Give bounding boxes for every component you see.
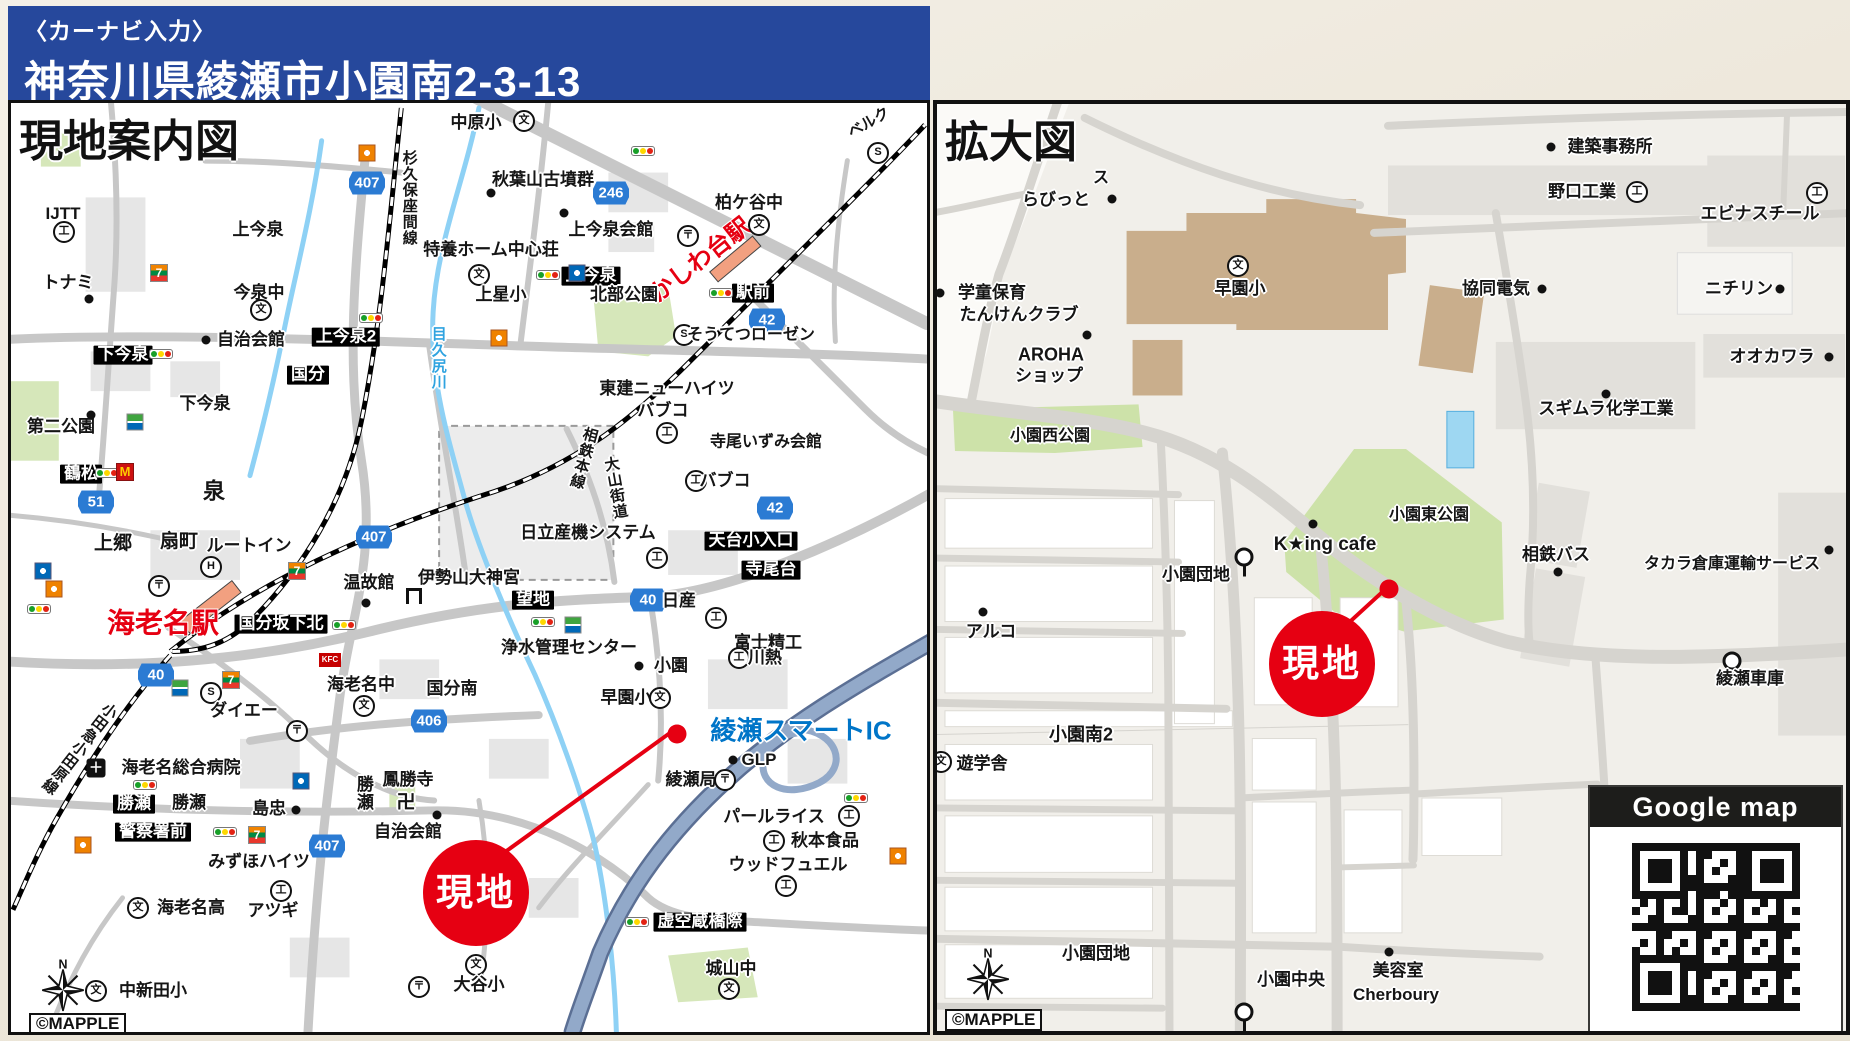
map-label: 伊勢山大神宮 [418,569,520,587]
map-label: 美容室 [1373,962,1424,980]
map-label: K★ing cafe [1274,535,1377,555]
poi-dot-icon [1554,568,1563,577]
map-label: 第二公園 [27,418,95,436]
route-shield: 40 [138,664,174,687]
map-label: オオカワラ [1730,348,1815,366]
poi-mark-icon: 文 [718,978,740,1000]
bus-stop-icon [1723,652,1742,671]
poi-dot-icon [87,411,96,420]
poi-dot-icon [1309,520,1318,529]
poi-mark-icon: 文 [468,264,490,286]
traffic-signal-icon [631,146,655,156]
map-label: 早園小 [1215,280,1266,298]
poi-mark-icon: 〒 [677,225,699,247]
google-map-box: Google map [1588,785,1843,1035]
map-label: 国分南 [427,680,478,698]
map-label: 綾瀬車庫 [1716,670,1784,688]
poi-mark-icon: S [867,142,889,164]
map-label: 泉 [203,481,225,504]
poi-mark-icon: 文 [85,980,107,1002]
station-label: 海老名駅 [107,608,219,637]
poi-mark-icon: 工 [705,607,727,629]
mapple-credit: ©MAPPLE [29,1013,126,1035]
lawson-icon [569,265,586,282]
familymart-icon [127,414,144,431]
route-shield: 51 [78,491,114,514]
poi-dot-icon [362,599,371,608]
traffic-signal-icon [149,349,173,359]
poi-dot-icon [433,811,442,820]
map-label: タカラ倉庫運輸サービス [1644,557,1820,574]
poi-mark-icon: 〒 [148,575,170,597]
poi-mark-icon: 工 [656,422,678,444]
poi-dot-icon [729,756,738,765]
map-label: 大谷小 [454,976,505,994]
poi-dot-icon [1825,546,1834,555]
poi-dot-icon [936,289,945,298]
seven-eleven-icon: 7 [222,671,240,689]
map-label: 自治会館 [374,823,442,841]
header-subtitle: 〈カーナビ入力〉 [24,12,930,46]
seven-eleven-icon: 7 [150,264,168,282]
map-label: 海老名中 [327,676,395,694]
map-label: たんけんクラブ [960,306,1079,324]
qr-code [1590,827,1841,1027]
leader-dot-icon [1380,580,1399,599]
map-label: 東建ニューハイツ [599,380,734,398]
traffic-signal-icon [332,620,356,630]
genchi-marker: 現地 [1269,611,1375,717]
address-header: 〈カーナビ入力〉 神奈川県綾瀬市小園南2-3-13 [8,6,930,108]
intersection-label: 上今泉2 [312,328,380,347]
map-label: アルコ [966,623,1017,641]
poi-mark-icon: 文 [748,214,770,236]
road-name-label: 杉久保座間線 [401,150,417,246]
traffic-signal-icon [844,793,868,803]
road-name-label: 勝瀬 [354,775,372,811]
eneos-icon [75,837,92,854]
map-label: 小園団地 [1062,945,1130,963]
map-label: 上郷 [94,534,132,554]
poi-dot-icon [292,806,301,815]
map-label: バブコ [700,472,751,490]
traffic-signal-icon [625,917,649,927]
traffic-signal-icon [133,780,157,790]
map-label: 小園東公園 [1389,508,1469,525]
poi-mark-icon: 工 [728,647,750,669]
traffic-signal-icon [531,617,555,627]
poi-mark-icon: 〒 [286,720,308,742]
traffic-signal-icon [536,270,560,280]
map-label: 北部公園 [590,286,658,304]
map-label: 中原小 [451,114,502,132]
shrine-icon [406,588,422,604]
seven-eleven-icon: 7 [248,826,266,844]
poi-mark-icon: H [200,556,222,578]
poi-mark-icon: 工 [646,547,668,569]
map-label: 海老名高 [157,899,225,917]
map-label: 綾瀬局 [666,771,717,789]
route-shield: 406 [411,710,447,733]
traffic-signal-icon [27,604,51,614]
map-label: トナミ [43,274,94,292]
poi-mark-icon: 工 [1626,181,1648,203]
intersection-label: 下今泉 [94,346,153,365]
map-label: 自治会館 [217,331,285,349]
map-label: 柏ケ谷中 [715,194,783,212]
map-label: 島忠 [252,800,286,818]
ic-label: 綾瀬スマートIC [710,717,891,744]
lawson-icon [293,773,310,790]
map-label: 特養ホーム中心荘 [423,241,559,259]
map-label: 秋葉山古墳群 [492,171,594,189]
map-label: 城山中 [706,960,757,978]
poi-mark-icon: 工 [1806,182,1828,204]
intersection-label: 寺尾台 [742,561,801,580]
mcdonalds-icon: M [116,463,134,481]
map-label: 上今泉 [233,221,284,239]
traffic-signal-icon [709,288,733,298]
poi-mark-icon: 文 [353,695,375,717]
map-label: みずほハイツ [208,853,310,871]
eneos-icon [359,145,376,162]
map-label: 日産 [662,592,696,610]
compass-rose-icon: N [965,946,1011,1002]
mapple-credit: ©MAPPLE [945,1009,1042,1031]
traffic-signal-icon [359,313,383,323]
kfc-icon: KFC [319,653,341,667]
intersection-label: 天台小入口 [705,532,798,551]
intersection-label: 虚空蔵橋際 [654,913,747,932]
map-label: エビナスチール [1701,205,1820,223]
left-map-title: 現地案内図 [19,105,239,169]
map-label: 遊学舎 [957,755,1008,773]
map-label: AROHA [1018,346,1084,365]
map-label: らびっと [1022,191,1090,209]
leader-dot-icon [668,725,687,744]
eneos-icon [890,848,907,865]
traffic-signal-icon [213,827,237,837]
poi-dot-icon [635,662,644,671]
map-label: 海老名総合病院 [122,759,241,777]
intersection-label: 国分 [287,366,329,385]
map-label: 小園 [654,657,688,675]
poi-dot-icon [487,189,496,198]
map-label: そうてつローゼン [687,328,815,345]
map-label: ス [1093,171,1109,188]
poi-mark-icon: 工 [838,805,860,827]
map-label: 学童保育 [958,284,1026,302]
poi-dot-icon [979,608,988,617]
map-label: 小園団地 [1162,566,1230,584]
map-label: 相鉄バス [1522,546,1590,564]
poi-dot-icon [85,295,94,304]
map-label: 小園中央 [1257,971,1325,989]
map-label: パールライス [723,808,825,826]
map-label: 中新田小 [119,982,187,1000]
familymart-icon [172,680,189,697]
poi-dot-icon [1825,353,1834,362]
poi-dot-icon [1108,195,1117,204]
map-label: 勝瀬 [172,794,206,812]
intersection-label: 警察署前 [115,823,191,842]
map-label: 日立産機システム [520,524,656,542]
map-label: ニチリン [1705,280,1773,298]
poi-mark-icon: 文 [1227,255,1249,277]
map-label: 上今泉会館 [569,221,654,239]
poi-mark-icon: 文 [513,110,535,132]
route-shield: 246 [593,182,629,205]
poi-mark-icon: 工 [763,830,785,852]
map-label: GLP [742,751,777,769]
poi-dot-icon [202,336,211,345]
map-label: ルートイン [207,537,292,555]
poi-mark-icon: 〒 [714,769,736,791]
intersection-label: 国分坂下北 [235,615,328,634]
google-map-label: Google map [1590,787,1841,827]
map-label: 秋本食品 [791,832,859,850]
genchi-marker: 現地 [423,840,529,946]
poi-mark-icon: 文 [649,687,671,709]
map-label: 協同電気 [1462,280,1530,298]
familymart-icon [565,617,582,634]
map-label: 野口工業 [1548,183,1616,201]
poi-dot-icon [1385,948,1394,957]
map-label: 小園西公園 [1010,429,1090,446]
map-label: スギムラ化学工業 [1538,400,1673,418]
enlarged-map-panel: 拡大図 スらびっと建築事務所野口工業工工エビナスチール学童保育たんけんクラブAR… [933,100,1850,1035]
map-label: ダイエー [210,702,278,720]
map-label: 小園南2 [1049,726,1113,745]
map-label: 建築事務所 [1568,138,1653,156]
bus-stop-icon [1235,1003,1254,1022]
poi-mark-icon: 文 [465,954,487,976]
page: { "header": { "subtitle": "〈カーナビ入力〉", "t… [0,0,1850,1041]
compass-rose-icon: N [40,957,86,1013]
intersection-label: 望地 [512,591,554,610]
map-label: バブコ [638,402,689,420]
map-label: 寺尾いずみ会館 [710,435,822,452]
guide-map-panel: 現地案内図 4072464251407404042406407下今泉上今泉2国分… [8,100,930,1035]
map-label: ショップ [1015,367,1083,385]
river-label: 目久尻川 [430,326,446,390]
map-label: 上星小 [476,286,527,304]
map-label: 扇町 [160,532,198,552]
hospital-icon: ＋ [87,759,106,778]
poi-dot-icon [1776,285,1785,294]
map-label: 鳳勝寺 [383,771,434,789]
map-label: 温故館 [344,574,395,592]
lawson-icon [35,563,52,580]
map-label: Cherboury [1353,986,1439,1004]
eneos-icon [491,330,508,347]
route-shield: 407 [356,526,392,549]
poi-mark-icon: 〒 [408,976,430,998]
eneos-icon [46,581,63,598]
seven-eleven-icon: 7 [288,562,306,580]
poi-mark-icon: 工 [53,221,75,243]
right-map-title: 拡大図 [945,106,1077,170]
map-label: アツギ [248,902,299,920]
intersection-label: 勝瀬 [113,795,155,814]
bus-stop-icon [1235,548,1254,567]
intersection-label: 駅前 [732,284,774,303]
map-label: 下今泉 [180,395,231,413]
poi-dot-icon [1538,285,1547,294]
route-shield: 407 [309,835,345,858]
map-label: 川熱 [748,649,782,667]
poi-mark-icon: 工 [270,880,292,902]
map-label: ウッドフュエル [729,856,848,874]
route-shield: 407 [349,172,385,195]
poi-mark-icon: 文 [250,299,272,321]
route-shield: 42 [757,497,793,520]
poi-dot-icon [1083,331,1092,340]
poi-mark-icon: 工 [775,875,797,897]
map-label: 浄水管理センター [501,639,637,657]
poi-dot-icon [560,209,569,218]
poi-dot-icon [1547,143,1556,152]
poi-mark-icon: 文 [127,897,149,919]
map-label: 卍 [396,793,415,813]
map-label: 早園小 [601,689,652,707]
route-shield: 40 [630,589,666,612]
poi-dot-icon [1602,390,1611,399]
